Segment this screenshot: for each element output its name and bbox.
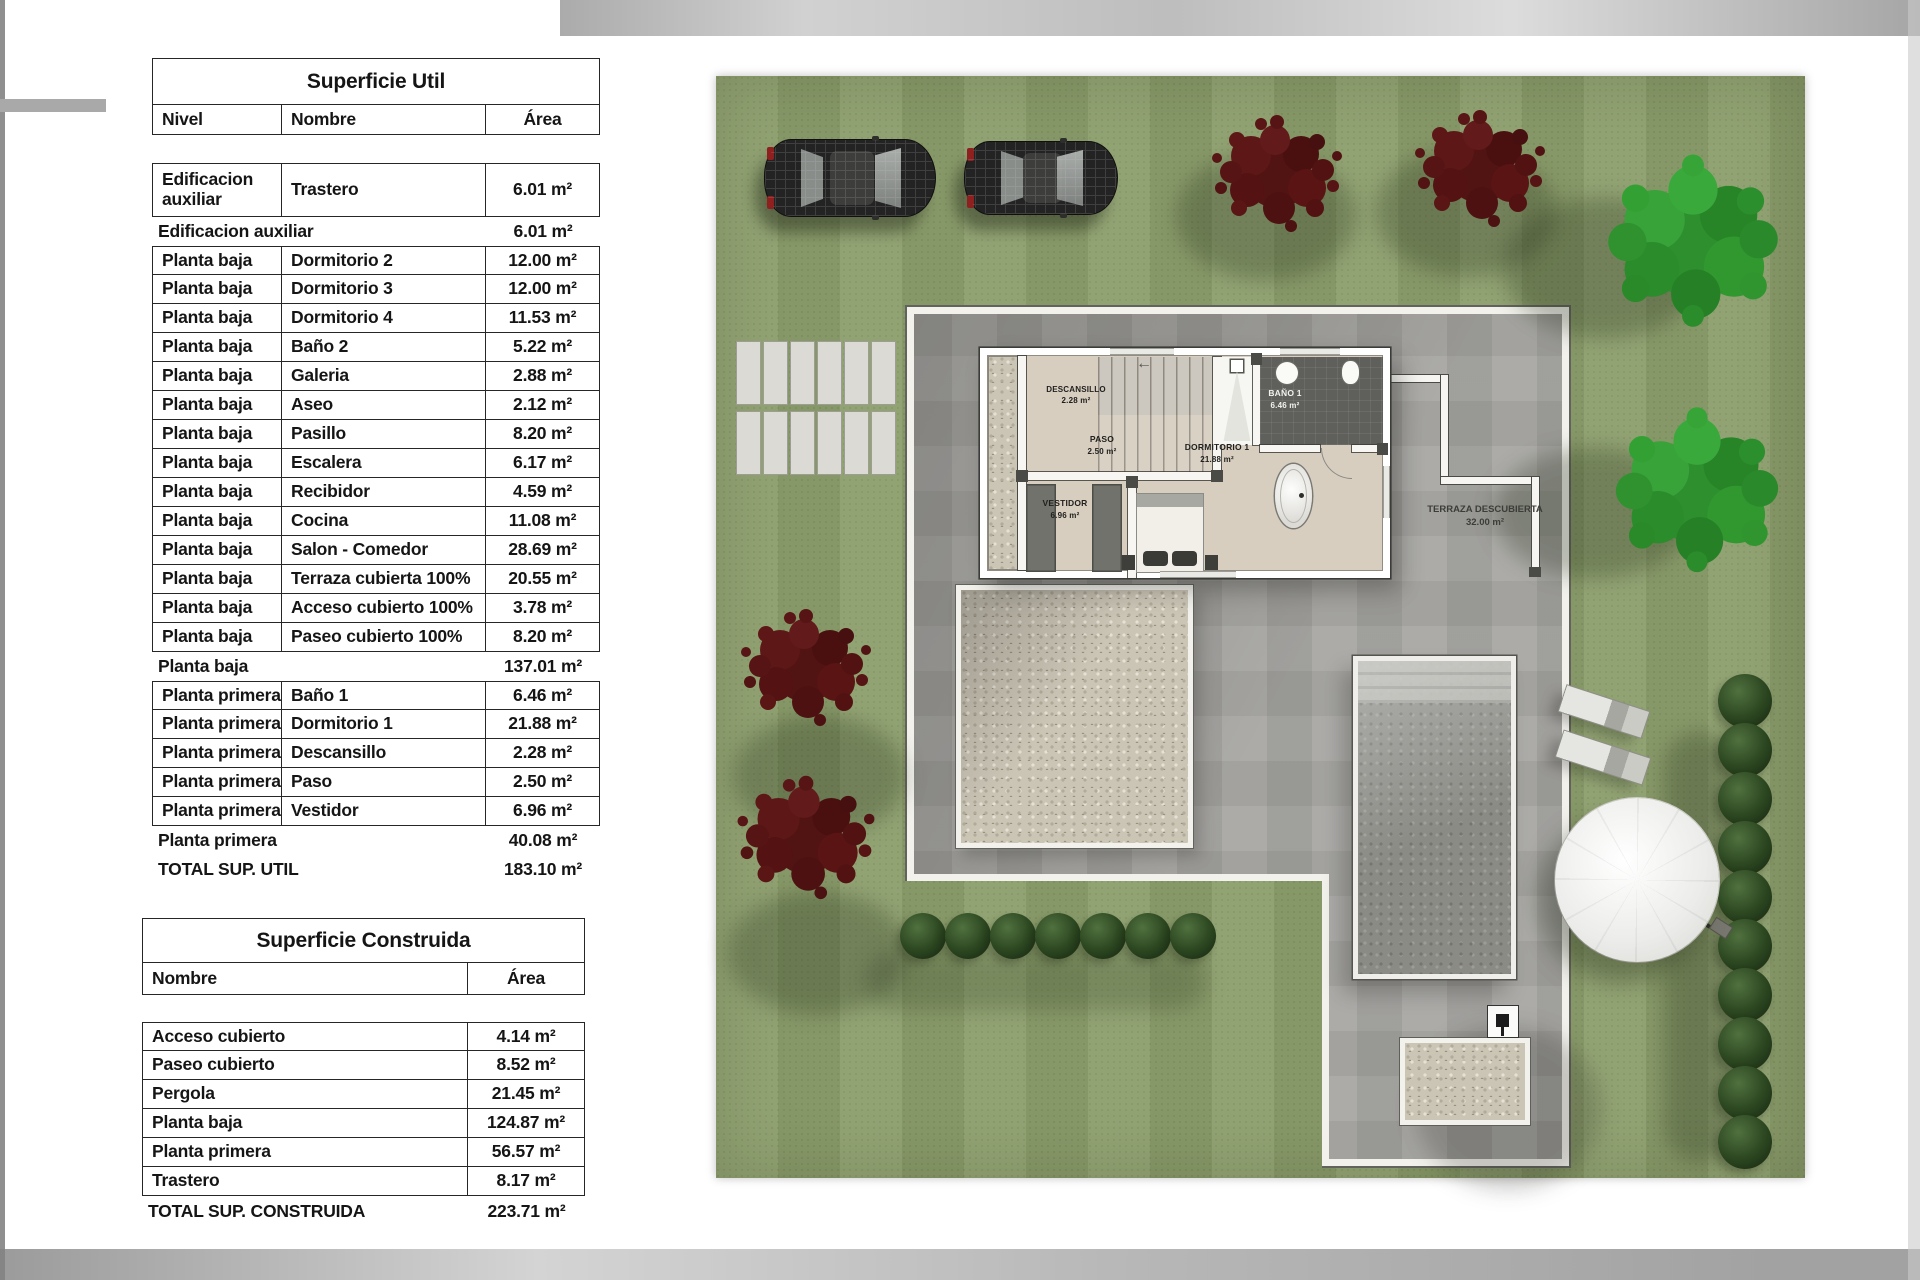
cell-nivel: Planta baja (152, 507, 282, 536)
table-row: Planta bajaTerraza cubierta 100%20.55 m² (152, 565, 600, 594)
table-gap (142, 995, 585, 1022)
cell-nombre: Salon - Comedor (282, 536, 486, 565)
table-row: Planta bajaDormitorio 411.53 m² (152, 304, 600, 333)
room-label-descansillo: DESCANSILLO 2.28 m² (1030, 384, 1122, 406)
table-subtotal-row: Planta primera40.08 m² (152, 826, 600, 855)
table-row: Trastero8.17 m² (142, 1167, 585, 1196)
cell-nivel: Planta baja (152, 362, 282, 391)
paving-slab (872, 412, 895, 474)
table-row: Planta bajaSalon - Comedor28.69 m² (152, 536, 600, 565)
col-header-area: Área (468, 963, 585, 995)
cell-nivel: Planta baja (152, 391, 282, 420)
table-row: Planta primeraBaño 16.46 m² (152, 681, 600, 710)
total-label: TOTAL SUP. UTIL (152, 855, 486, 884)
wall-post (1211, 470, 1223, 482)
pillow (1143, 551, 1168, 566)
cell-area: 4.14 m² (468, 1022, 585, 1051)
pergola-shadow (961, 590, 1188, 843)
car-wireframe (965, 142, 1117, 214)
table-row: Planta baja124.87 m² (142, 1109, 585, 1138)
cell-nivel: Planta baja (152, 565, 282, 594)
bush (1718, 1115, 1772, 1169)
paving-slab (791, 342, 814, 404)
cell-nombre: Escalera (282, 449, 486, 478)
bed-headboard (1137, 494, 1203, 507)
room-area: 32.00 m² (1409, 517, 1561, 530)
bush (990, 913, 1036, 959)
table-row: Planta bajaCocina11.08 m² (152, 507, 600, 536)
paving-slab (818, 412, 841, 474)
pillow (1172, 551, 1197, 566)
bush (1080, 913, 1126, 959)
cell-nombre: Dormitorio 2 (282, 246, 486, 275)
wall-post (1251, 353, 1262, 365)
paving-slab (737, 342, 760, 404)
page-edge-artifact (0, 99, 106, 112)
table-gap (152, 135, 600, 163)
cell-nombre: Aseo (282, 391, 486, 420)
cell-nombre: Vestidor (282, 797, 486, 826)
paving-slab (845, 412, 868, 474)
cell-area: 8.52 m² (468, 1051, 585, 1080)
bathtub-drain (1299, 493, 1304, 498)
table-total-row: TOTAL SUP. UTIL183.10 m² (152, 855, 600, 884)
window (1383, 466, 1390, 518)
cell-nivel: Planta baja (152, 623, 282, 652)
cell-nombre: Recibidor (282, 478, 486, 507)
red-tree (728, 760, 884, 916)
table-subtotal-row: Edificacion auxiliar6.01 m² (152, 217, 600, 246)
terrace-wall (1441, 375, 1448, 484)
window (1110, 348, 1174, 355)
cell-area: 12.00 m² (486, 246, 600, 275)
cell-area: 2.28 m² (486, 739, 600, 768)
cell-nivel: Planta primera (152, 797, 282, 826)
table-title: Superficie Construida (142, 918, 585, 963)
subtotal-label: Planta primera (152, 826, 486, 855)
room-area: 2.28 m² (1030, 395, 1122, 406)
cell-area: 3.78 m² (486, 594, 600, 623)
bush (945, 913, 991, 959)
table-row: Planta primeraDescansillo2.28 m² (152, 739, 600, 768)
utility-box (1487, 1005, 1519, 1038)
table-row: Edificacion auxiliarTrastero6.01 m² (152, 163, 600, 217)
bush (1718, 968, 1772, 1022)
cell-nombre: Dormitorio 4 (282, 304, 486, 333)
paving-slab (845, 342, 868, 404)
room-name: DORMITORIO 1 (1155, 442, 1279, 454)
cell-nivel: Planta primera (152, 739, 282, 768)
bush (1718, 1017, 1772, 1071)
house-first-floor: ← (980, 348, 1390, 578)
bush (1718, 723, 1772, 777)
cell-nombre: Acceso cubierto (142, 1022, 468, 1051)
green-tree (1608, 402, 1786, 580)
room-label-paso: PASO 2.50 m² (1062, 434, 1142, 457)
cell-nombre: Paseo cubierto (142, 1051, 468, 1080)
paving-slab (764, 412, 787, 474)
cell-nombre: Terraza cubierta 100% (282, 565, 486, 594)
pergola-gravel-area (956, 585, 1193, 848)
table-title: Superficie Util (152, 58, 600, 105)
table-row: Planta bajaEscalera6.17 m² (152, 449, 600, 478)
bush (1718, 1066, 1772, 1120)
bush (1718, 821, 1772, 875)
room-area: 6.46 m² (1242, 400, 1328, 411)
cell-nivel: Planta baja (152, 478, 282, 507)
cell-area: 6.46 m² (486, 681, 600, 710)
room-label-terraza: TERRAZA DESCUBIERTA 32.00 m² (1409, 504, 1561, 530)
terrace-wall (1441, 477, 1539, 484)
cell-nombre: Baño 2 (282, 333, 486, 362)
cell-area: 28.69 m² (486, 536, 600, 565)
bush (1718, 772, 1772, 826)
sink-icon (1276, 362, 1298, 384)
cell-area: 20.55 m² (486, 565, 600, 594)
paving-slabs-row (737, 342, 895, 404)
table-row: Planta bajaDormitorio 312.00 m² (152, 275, 600, 304)
table-row: Paseo cubierto8.52 m² (142, 1051, 585, 1080)
cell-area: 11.53 m² (486, 304, 600, 333)
interior-wall (1018, 472, 1221, 480)
table-header-row: Nombre Área (142, 963, 585, 995)
site-plan: TERRAZA DESCUBIERTA 32.00 m² ← (716, 76, 1805, 1178)
planter-strip (988, 356, 1018, 570)
col-header-nombre: Nombre (282, 105, 486, 135)
subtotal-area: 40.08 m² (486, 826, 600, 855)
pool-sheen (1358, 661, 1511, 974)
table-row: Planta bajaRecibidor4.59 m² (152, 478, 600, 507)
cell-nivel: Planta baja (152, 333, 282, 362)
table-row: Planta primeraVestidor6.96 m² (152, 797, 600, 826)
cell-nivel: Planta baja (152, 420, 282, 449)
subtotal-label: Edificacion auxiliar (152, 217, 486, 246)
col-header-area: Área (486, 105, 600, 135)
shower-head (1231, 360, 1243, 372)
cell-nombre: Planta primera (142, 1138, 468, 1167)
cell-nombre: Baño 1 (282, 681, 486, 710)
cell-area: 2.50 m² (486, 768, 600, 797)
bush (1718, 674, 1772, 728)
terrace-wall (1390, 375, 1448, 382)
interior-wall (1018, 356, 1026, 570)
cell-nivel: Edificacion auxiliar (152, 163, 282, 217)
table-total-row: TOTAL SUP. CONSTRUIDA223.71 m² (142, 1196, 585, 1227)
cell-nivel: Planta baja (152, 536, 282, 565)
table-row: Planta bajaPasillo8.20 m² (152, 420, 600, 449)
cell-nombre: Planta baja (142, 1109, 468, 1138)
cell-area: 6.01 m² (486, 163, 600, 217)
cell-nivel: Planta baja (152, 449, 282, 478)
total-area: 223.71 m² (468, 1196, 585, 1227)
cell-area: 56.57 m² (468, 1138, 585, 1167)
toilet-icon (1342, 361, 1359, 384)
cell-nivel: Planta baja (152, 304, 282, 333)
nightstand (1205, 555, 1218, 570)
table-row: Planta bajaAcceso cubierto 100%3.78 m² (152, 594, 600, 623)
paving-slab (791, 412, 814, 474)
page-edge-artifact (560, 0, 1920, 36)
superficie-util-table: Superficie Util Nivel Nombre Área Edific… (152, 58, 600, 884)
sun-lounger (1559, 685, 1649, 737)
table-row: Acceso cubierto4.14 m² (142, 1022, 585, 1051)
wall-post (1377, 443, 1388, 455)
red-tree (1407, 96, 1553, 242)
page-edge-artifact (0, 0, 5, 1280)
room-name: VESTIDOR (1024, 498, 1106, 510)
table-row: Planta primeraPaso2.50 m² (152, 768, 600, 797)
subtotal-label: Planta baja (152, 652, 486, 681)
cell-area: 2.12 m² (486, 391, 600, 420)
parasol (1555, 798, 1719, 962)
cell-area: 5.22 m² (486, 333, 600, 362)
wall-post (1016, 470, 1028, 482)
room-area: 6.96 m² (1024, 510, 1106, 521)
page-edge-artifact (1908, 0, 1920, 1280)
cell-area: 124.87 m² (468, 1109, 585, 1138)
bush (1170, 913, 1216, 959)
cell-nivel: Planta baja (152, 594, 282, 623)
cell-nombre: Trastero (142, 1167, 468, 1196)
shadow (866, 952, 1206, 1010)
table-row: Planta primera56.57 m² (142, 1138, 585, 1167)
cell-nombre: Galeria (282, 362, 486, 391)
paving-slab (737, 412, 760, 474)
col-header-nombre: Nombre (142, 963, 468, 995)
document-page: Superficie Util Nivel Nombre Área Edific… (0, 0, 1920, 1280)
swimming-pool (1353, 656, 1516, 979)
car (765, 140, 935, 216)
cell-nombre: Trastero (282, 163, 486, 217)
room-area: 2.50 m² (1062, 446, 1142, 457)
shed-gravel-pad (1400, 1038, 1530, 1125)
bush (1035, 913, 1081, 959)
cell-nivel: Planta baja (152, 246, 282, 275)
bush (900, 913, 946, 959)
utility-box-stem (1501, 1027, 1504, 1036)
cell-nombre: Dormitorio 3 (282, 275, 486, 304)
table-row: Planta primeraDormitorio 121.88 m² (152, 710, 600, 739)
cell-area: 4.59 m² (486, 478, 600, 507)
table-row: Pergola21.45 m² (142, 1080, 585, 1109)
paving-slab (764, 342, 787, 404)
superficie-construida-table: Superficie Construida Nombre Área Acceso… (142, 918, 585, 1227)
cell-area: 12.00 m² (486, 275, 600, 304)
cell-nivel: Planta baja (152, 275, 282, 304)
table-header-row: Nivel Nombre Área (152, 105, 600, 135)
total-area: 183.10 m² (486, 855, 600, 884)
cell-area: 6.96 m² (486, 797, 600, 826)
cell-nombre: Paso (282, 768, 486, 797)
cell-area: 8.17 m² (468, 1167, 585, 1196)
room-label-dormitorio1: DORMITORIO 1 21.88 m² (1155, 442, 1279, 465)
cell-nombre: Pasillo (282, 420, 486, 449)
subtotal-area: 137.01 m² (486, 652, 600, 681)
table-row: Planta bajaAseo2.12 m² (152, 391, 600, 420)
cell-nombre: Pergola (142, 1080, 468, 1109)
cell-nombre: Cocina (282, 507, 486, 536)
col-header-nivel: Nivel (152, 105, 282, 135)
table-row: Planta bajaPaseo cubierto 100%8.20 m² (152, 623, 600, 652)
bush (1125, 913, 1171, 959)
subtotal-area: 6.01 m² (486, 217, 600, 246)
bathtub (1275, 464, 1312, 528)
cell-area: 8.20 m² (486, 420, 600, 449)
parasol-canopy-seams (1555, 798, 1719, 962)
room-name: TERRAZA DESCUBIERTA (1409, 504, 1561, 517)
car (965, 142, 1117, 214)
window (1160, 571, 1236, 578)
cell-nivel: Planta primera (152, 768, 282, 797)
room-area: 21.88 m² (1155, 454, 1279, 465)
cell-area: 21.88 m² (486, 710, 600, 739)
paving-slabs-row (737, 412, 895, 474)
window (1280, 348, 1340, 355)
cell-nombre: Acceso cubierto 100% (282, 594, 486, 623)
total-label: TOTAL SUP. CONSTRUIDA (142, 1196, 468, 1227)
cell-area: 8.20 m² (486, 623, 600, 652)
green-tree (1600, 149, 1786, 335)
table-subtotal-row: Planta baja137.01 m² (152, 652, 600, 681)
cell-nivel: Planta primera (152, 710, 282, 739)
nightstand (1122, 555, 1135, 570)
bed (1137, 494, 1203, 572)
cell-area: 11.08 m² (486, 507, 600, 536)
room-name: BAÑO 1 (1242, 388, 1328, 400)
page-edge-artifact (0, 1249, 1920, 1280)
room-label-vestidor: VESTIDOR 6.96 m² (1024, 498, 1106, 521)
cell-area: 6.17 m² (486, 449, 600, 478)
cell-area: 2.88 m² (486, 362, 600, 391)
cell-nivel: Planta primera (152, 681, 282, 710)
wall-post (1529, 567, 1541, 577)
table-row: Planta bajaDormitorio 212.00 m² (152, 246, 600, 275)
bush (1718, 870, 1772, 924)
table-row: Planta bajaBaño 25.22 m² (152, 333, 600, 362)
paving-slab (818, 342, 841, 404)
utility-box-switch (1496, 1014, 1509, 1027)
table-row: Planta bajaGaleria2.88 m² (152, 362, 600, 391)
red-tree (732, 594, 880, 742)
wall-post (1126, 476, 1138, 488)
red-tree (1202, 99, 1352, 249)
room-label-bano1: BAÑO 1 6.46 m² (1242, 388, 1328, 411)
cell-nombre: Descansillo (282, 739, 486, 768)
room-name: DESCANSILLO (1030, 384, 1122, 395)
car-wireframe (765, 140, 935, 216)
cell-nombre: Paseo cubierto 100% (282, 623, 486, 652)
cell-area: 21.45 m² (468, 1080, 585, 1109)
cell-nombre: Dormitorio 1 (282, 710, 486, 739)
stair-direction-arrow: ← (1136, 355, 1152, 373)
paving-slab (872, 342, 895, 404)
room-name: PASO (1062, 434, 1142, 446)
